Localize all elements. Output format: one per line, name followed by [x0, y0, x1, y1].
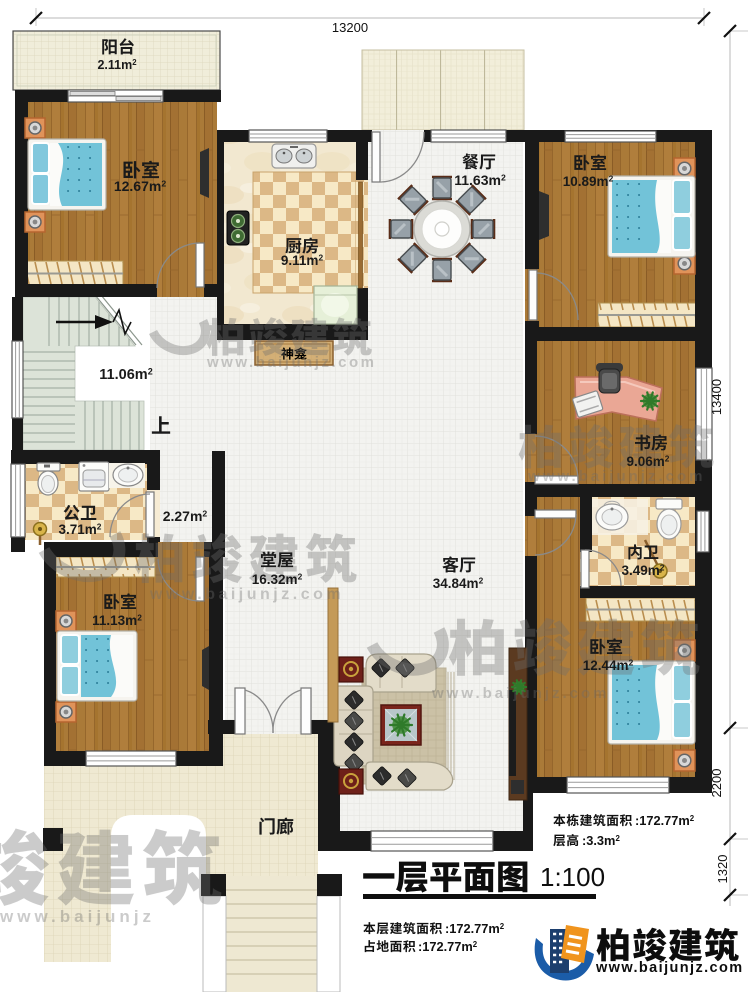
svg-text:9.06m2: 9.06m2	[627, 454, 670, 469]
svg-text:www.baijunjz.com: www.baijunjz.com	[206, 354, 376, 371]
svg-text:2200: 2200	[709, 769, 724, 798]
svg-text:1320: 1320	[715, 855, 730, 884]
svg-text::3.3m2: :3.3m2	[582, 833, 620, 848]
svg-text:34.84m2: 34.84m2	[433, 576, 484, 591]
svg-text:2.27m2: 2.27m2	[163, 508, 208, 524]
svg-text::172.77m2: :172.77m2	[418, 939, 478, 954]
svg-text:11.13m2: 11.13m2	[92, 613, 142, 628]
svg-text:1:100: 1:100	[540, 862, 605, 892]
svg-text:13400: 13400	[709, 379, 724, 415]
svg-text:16.32m2: 16.32m2	[252, 572, 303, 587]
svg-text:11.06m2: 11.06m2	[99, 366, 152, 383]
svg-text:www.baijunjz.com: www.baijunjz.com	[431, 685, 609, 702]
svg-text:2.11m2: 2.11m2	[97, 58, 137, 72]
svg-text::172.77m2: :172.77m2	[635, 813, 695, 828]
svg-text:www.baijunjz.com: www.baijunjz.com	[595, 960, 744, 976]
svg-text:13200: 13200	[332, 20, 368, 35]
svg-text:12.44m2: 12.44m2	[583, 658, 634, 673]
svg-text:www.baijunjz: www.baijunjz	[0, 907, 155, 926]
svg-text:9.11m2: 9.11m2	[281, 253, 324, 268]
svg-text:10.89m2: 10.89m2	[563, 174, 614, 189]
svg-text::172.77m2: :172.77m2	[445, 921, 505, 936]
svg-text:12.67m2: 12.67m2	[114, 178, 166, 194]
svg-text:3.49m2: 3.49m2	[622, 563, 665, 578]
svg-text:11.63m2: 11.63m2	[454, 172, 506, 188]
svg-text:3.71m2: 3.71m2	[59, 522, 102, 537]
svg-text:www.baijunjz.com: www.baijunjz.com	[527, 468, 705, 485]
svg-text:www.baijunjz.com: www.baijunjz.com	[149, 586, 344, 603]
